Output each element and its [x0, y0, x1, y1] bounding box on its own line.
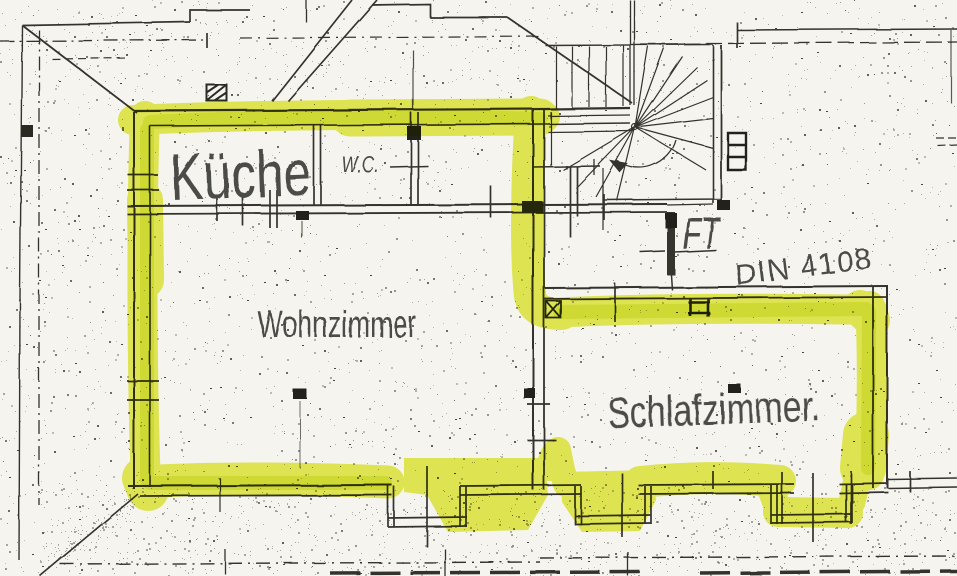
- svg-text:Wohnzimmer: Wohnzimmer: [257, 304, 417, 346]
- svg-text:Schlafzimmer.: Schlafzimmer.: [607, 382, 822, 438]
- svg-text:W.C.: W.C.: [341, 151, 379, 177]
- svg-text:FT: FT: [683, 208, 721, 259]
- svg-text:Küche: Küche: [169, 135, 312, 214]
